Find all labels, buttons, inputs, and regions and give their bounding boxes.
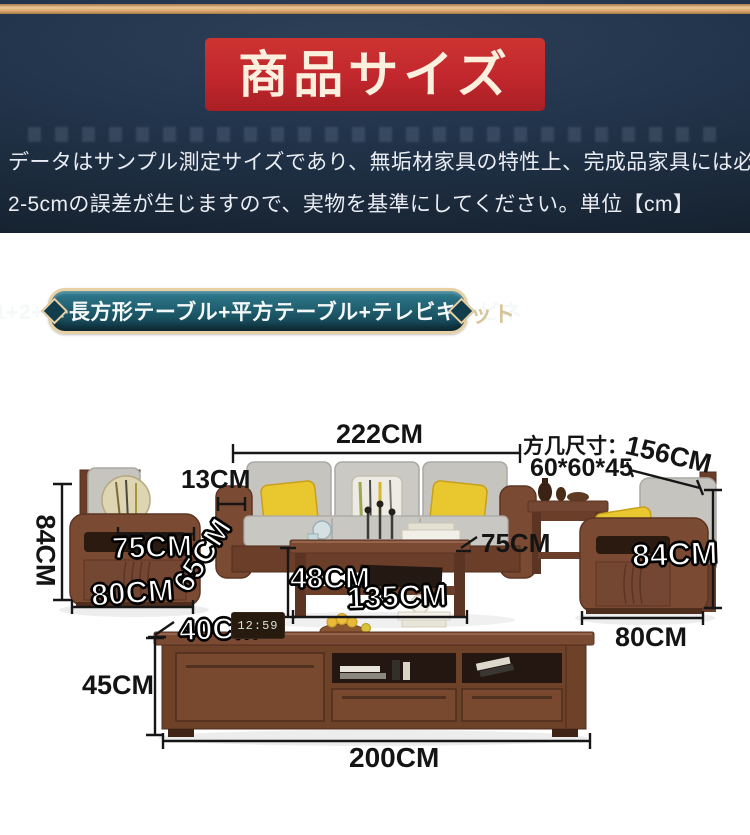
dim-label-left-sofa-width: 80CM bbox=[90, 574, 175, 611]
center-sofa bbox=[216, 462, 536, 578]
set-composition-label: 1+2+3+長方形テーブル+平方テーブル+テレビキャビネ bbox=[0, 296, 522, 326]
gold-divider-line bbox=[0, 4, 750, 14]
size-disclaimer-line2: 2-5cmの誤差が生じますので、実物を基準にしてください。単位【cm】 bbox=[8, 188, 694, 218]
clock-time: 12:59 bbox=[237, 619, 278, 633]
hero-banner: 商品サイズ データはサンプル測定サイズであり、無垢材家具の特性上、完成品家具には… bbox=[0, 0, 750, 233]
dim-label-armrest-width: 13CM bbox=[181, 466, 250, 492]
set-composition-overflow: ット bbox=[470, 297, 516, 329]
dim-label-tv-stand-width: 200CM bbox=[349, 744, 439, 772]
product-size-title-box: 商品サイズ bbox=[205, 38, 545, 111]
dim-label-right-sofa-height: 84CM bbox=[631, 537, 717, 572]
dim-label-coffee-table-width: 135CM bbox=[346, 579, 447, 613]
dim-label-tv-stand-height: 45CM bbox=[82, 672, 154, 699]
set-composition-banner: 1+2+3+長方形テーブル+平方テーブル+テレビキャビネ bbox=[48, 288, 468, 334]
dim-label-sofa-width: 222CM bbox=[336, 421, 423, 448]
page-title: 商品サイズ bbox=[238, 50, 512, 100]
product-size-page: 商品サイズ データはサンプル測定サイズであり、無垢材家具の特性上、完成品家具には… bbox=[0, 0, 750, 835]
digital-clock: 12:59 bbox=[231, 612, 285, 639]
watermark-ghost-text bbox=[28, 127, 722, 142]
size-disclaimer-line1: データはサンプル測定サイズであり、無垢材家具の特性上、完成品家具には必 bbox=[8, 146, 750, 176]
dim-label-square-table-size: 60*60*45 bbox=[530, 456, 633, 481]
dim-label-right-seat-depth: 75CM bbox=[481, 530, 550, 556]
dim-label-left-sofa-height: 84CM bbox=[32, 512, 59, 590]
dim-label-right-sofa-width: 80CM bbox=[615, 624, 687, 651]
